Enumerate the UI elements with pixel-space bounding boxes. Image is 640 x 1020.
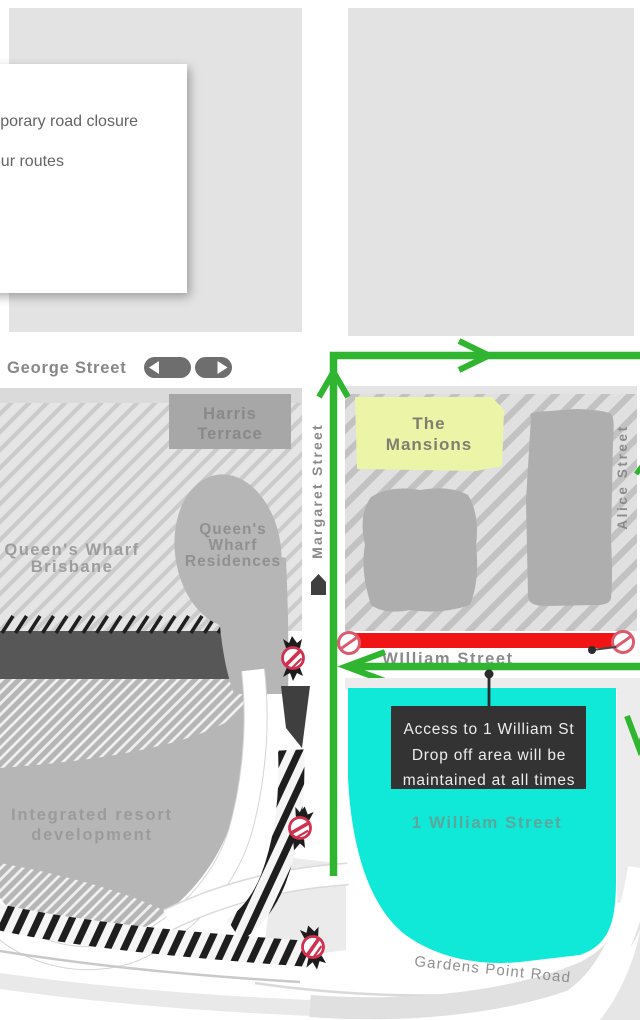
svg-text:Detour routes: Detour routes <box>0 153 64 170</box>
svg-text:Margaret Street: Margaret Street <box>309 423 325 559</box>
svg-text:Queen's: Queen's <box>199 521 267 538</box>
svg-text:Temporary road closure: Temporary road closure <box>0 113 138 130</box>
svg-text:Access to 1 William St: Access to 1 William St <box>404 721 575 738</box>
svg-text:Integrated resort: Integrated resort <box>11 806 173 824</box>
svg-text:Drop off area will be: Drop off area will be <box>412 747 566 764</box>
svg-text:Terrace: Terrace <box>197 425 262 443</box>
svg-text:Residences: Residences <box>185 553 281 570</box>
svg-text:The: The <box>412 414 445 433</box>
svg-text:Harris: Harris <box>203 405 257 423</box>
svg-text:1 William Street: 1 William Street <box>412 813 562 832</box>
svg-text:Wharf: Wharf <box>209 537 258 554</box>
svg-text:development: development <box>31 826 153 844</box>
svg-text:Mansions: Mansions <box>386 435 472 454</box>
svg-text:Queen's Wharf: Queen's Wharf <box>4 541 139 559</box>
svg-text:maintained at all times: maintained at all times <box>403 772 576 789</box>
svg-text:Brisbane: Brisbane <box>31 558 114 576</box>
svg-text:Alice Street: Alice Street <box>615 424 630 529</box>
svg-text:George Street: George Street <box>7 359 127 377</box>
